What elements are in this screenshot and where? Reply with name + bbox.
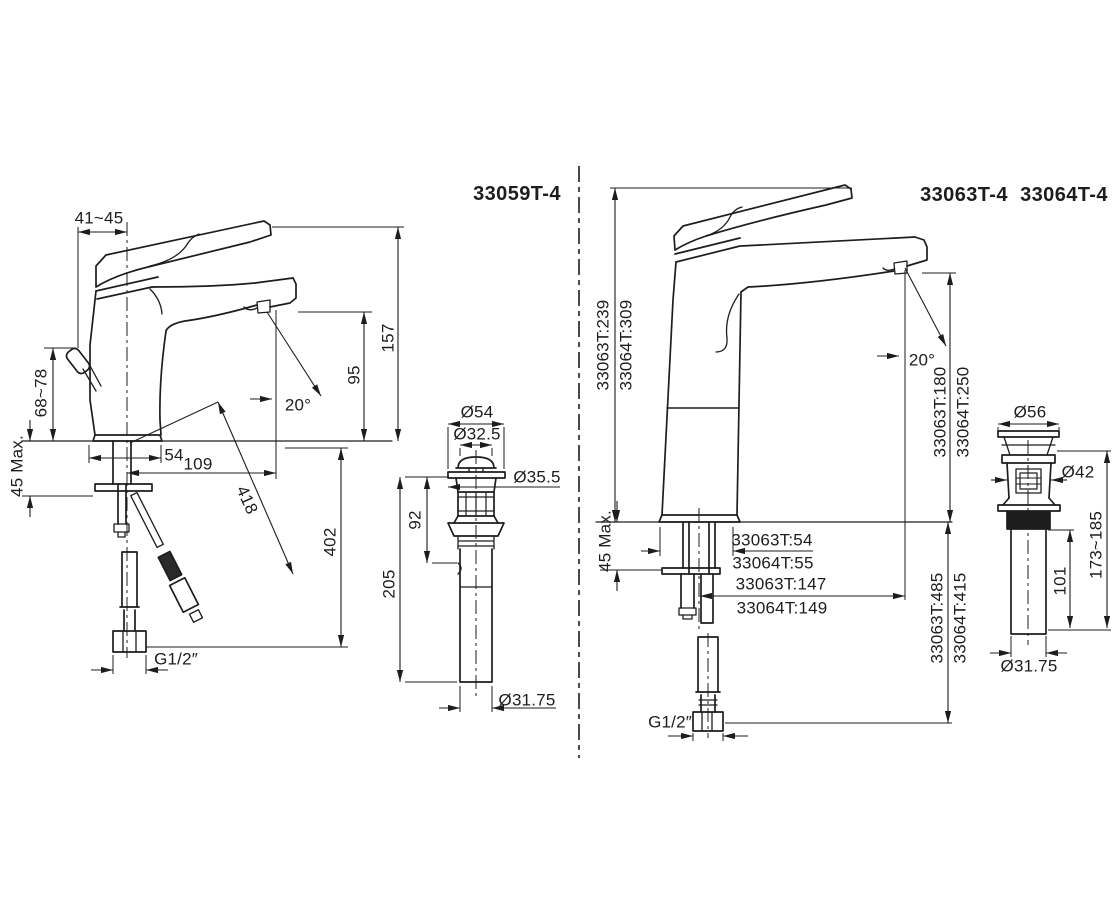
- dim-spout-reach-left: 109: [184, 456, 213, 473]
- dim-drain-flange-dia-left: Ø54: [461, 404, 494, 421]
- dim-spout-reach-right-a: 33063T:147: [736, 576, 827, 593]
- dim-base-width-right-b: 33064T:55: [732, 555, 813, 572]
- model-label-right-a: 33063T-4: [920, 185, 1008, 205]
- dim-base-width-right-a: 33063T:54: [731, 532, 812, 549]
- dim-below-deck-right-a: 33063T:485: [929, 573, 946, 664]
- dim-thread-left: G1/2″: [154, 651, 198, 668]
- dim-drain-body-dia-right: Ø42: [1062, 464, 1095, 481]
- dim-spout-angle-right: 20°: [909, 352, 935, 369]
- dim-spout-angle-left: 20°: [285, 397, 311, 414]
- dim-drain-cap-dia-right: Ø56: [1014, 404, 1047, 421]
- dim-thread-right: G1/2″: [648, 714, 692, 731]
- model-label-right-b: 33064T-4: [1020, 185, 1108, 205]
- dim-overall-height-right-a: 33063T:239: [595, 300, 612, 391]
- dim-lever-height: 68~78: [33, 369, 50, 418]
- model-label-left: 33059T-4: [473, 184, 561, 204]
- dim-below-deck-left: 402: [322, 528, 339, 557]
- center-lines: [127, 222, 1028, 738]
- dim-drain-tailpiece-dia-left: Ø31.75: [499, 692, 556, 709]
- dim-drain-overall-length-right: 173~185: [1088, 511, 1105, 579]
- right-faucet-outline: [596, 185, 952, 731]
- dim-base-width-left: 54: [164, 447, 183, 464]
- right-drain-outline: [998, 431, 1060, 634]
- dim-spout-reach-right-b: 33064T:149: [737, 600, 828, 617]
- dim-spout-height-right-b: 33064T:250: [955, 367, 972, 458]
- technical-drawing-canvas: 33059T-4 33063T-4 33064T-4 41~45 68~78 4…: [0, 0, 1120, 920]
- dim-overall-height-left: 157: [380, 324, 397, 353]
- dim-handle-offset: 41~45: [75, 210, 124, 227]
- dim-drain-tailpiece-dia-right: Ø31.75: [1001, 658, 1058, 675]
- dim-overall-height-right-b: 33064T:309: [618, 300, 635, 391]
- dim-below-deck-right-b: 33064T:415: [952, 573, 969, 664]
- dim-deck-max-left: 45 Max.: [9, 435, 26, 497]
- dim-drain-tailpiece-length-right: 101: [1052, 567, 1069, 596]
- dim-drain-body-dia-left: Ø35.5: [513, 469, 560, 486]
- dim-drain-overall-length-left: 205: [381, 570, 398, 599]
- dim-spout-height-left: 95: [346, 365, 363, 384]
- dim-drain-plug-dia-left: Ø32.5: [453, 426, 500, 443]
- dim-deck-max-right: 45 Max.: [597, 510, 614, 572]
- dim-spout-height-right-a: 33063T:180: [932, 367, 949, 458]
- dim-drain-upper-length-left: 92: [407, 510, 424, 529]
